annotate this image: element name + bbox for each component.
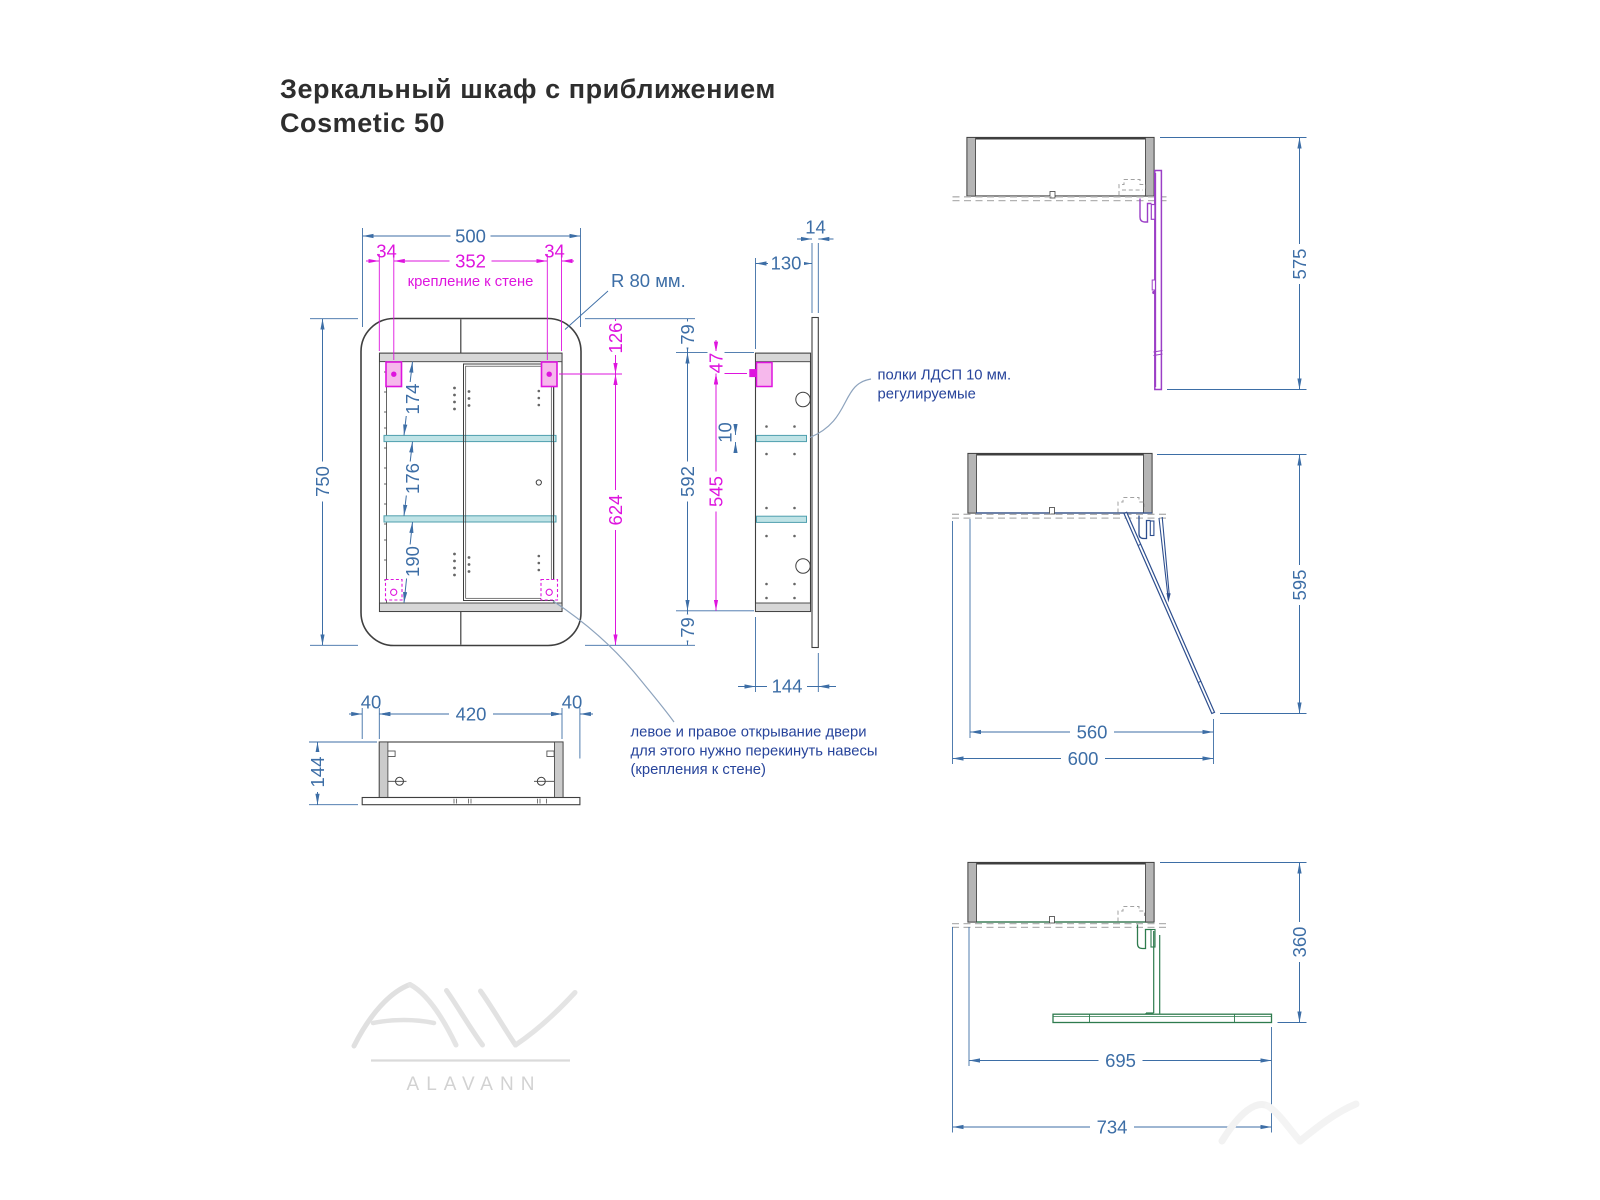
svg-text:144: 144: [772, 676, 803, 697]
svg-text:360: 360: [1289, 927, 1310, 958]
svg-text:для этого нужно перекинуть нав: для этого нужно перекинуть навесы: [631, 744, 878, 760]
svg-text:545: 545: [706, 476, 727, 507]
svg-text:174: 174: [402, 384, 423, 415]
svg-text:крепление к стене: крепление к стене: [408, 274, 534, 290]
svg-text:полки ЛДСП 10 мм.: полки ЛДСП 10 мм.: [878, 368, 1012, 384]
svg-text:ALAVANN: ALAVANN: [407, 1074, 542, 1095]
svg-text:34: 34: [544, 241, 565, 262]
svg-text:144: 144: [307, 757, 328, 788]
svg-text:575: 575: [1289, 249, 1310, 280]
svg-text:34: 34: [376, 241, 397, 262]
svg-text:130: 130: [771, 253, 802, 274]
svg-text:R 80 мм.: R 80 мм.: [611, 270, 686, 291]
svg-text:592: 592: [677, 466, 698, 497]
svg-text:79: 79: [677, 617, 698, 638]
svg-text:624: 624: [605, 495, 626, 526]
svg-text:600: 600: [1068, 748, 1099, 769]
svg-text:47: 47: [706, 353, 727, 374]
svg-text:176: 176: [402, 463, 423, 494]
svg-text:Cosmetic 50: Cosmetic 50: [280, 108, 445, 138]
svg-text:500: 500: [455, 226, 486, 247]
svg-text:40: 40: [562, 692, 583, 713]
svg-text:750: 750: [312, 466, 333, 497]
svg-text:695: 695: [1105, 1050, 1136, 1071]
svg-text:левое и правое открывание двер: левое и правое открывание двери: [631, 725, 867, 741]
svg-text:560: 560: [1077, 722, 1108, 743]
svg-text:126: 126: [605, 323, 626, 354]
svg-text:Зеркальный шкаф с приближением: Зеркальный шкаф с приближением: [280, 74, 776, 104]
svg-text:14: 14: [805, 217, 826, 238]
svg-text:420: 420: [456, 704, 487, 725]
svg-text:10: 10: [715, 422, 736, 443]
svg-text:352: 352: [455, 251, 486, 272]
svg-text:734: 734: [1097, 1117, 1128, 1138]
svg-text:595: 595: [1289, 570, 1310, 601]
svg-text:190: 190: [402, 546, 423, 577]
svg-text:(крепления к стене): (крепления к стене): [631, 762, 767, 778]
svg-text:79: 79: [677, 324, 698, 345]
svg-text:40: 40: [361, 692, 382, 713]
svg-text:регулируемые: регулируемые: [878, 387, 976, 403]
